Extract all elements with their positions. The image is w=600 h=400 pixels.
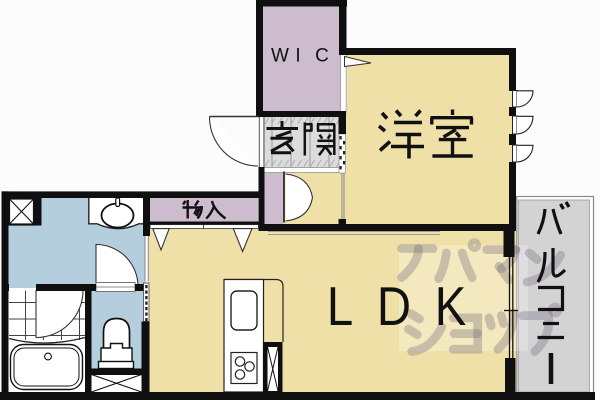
svg-text:K: K: [435, 276, 467, 337]
svg-text:L: L: [327, 276, 353, 337]
svg-text:D: D: [377, 276, 411, 337]
svg-text:I: I: [295, 46, 300, 67]
svg-text:W: W: [271, 46, 289, 67]
svg-text:C: C: [315, 46, 329, 67]
